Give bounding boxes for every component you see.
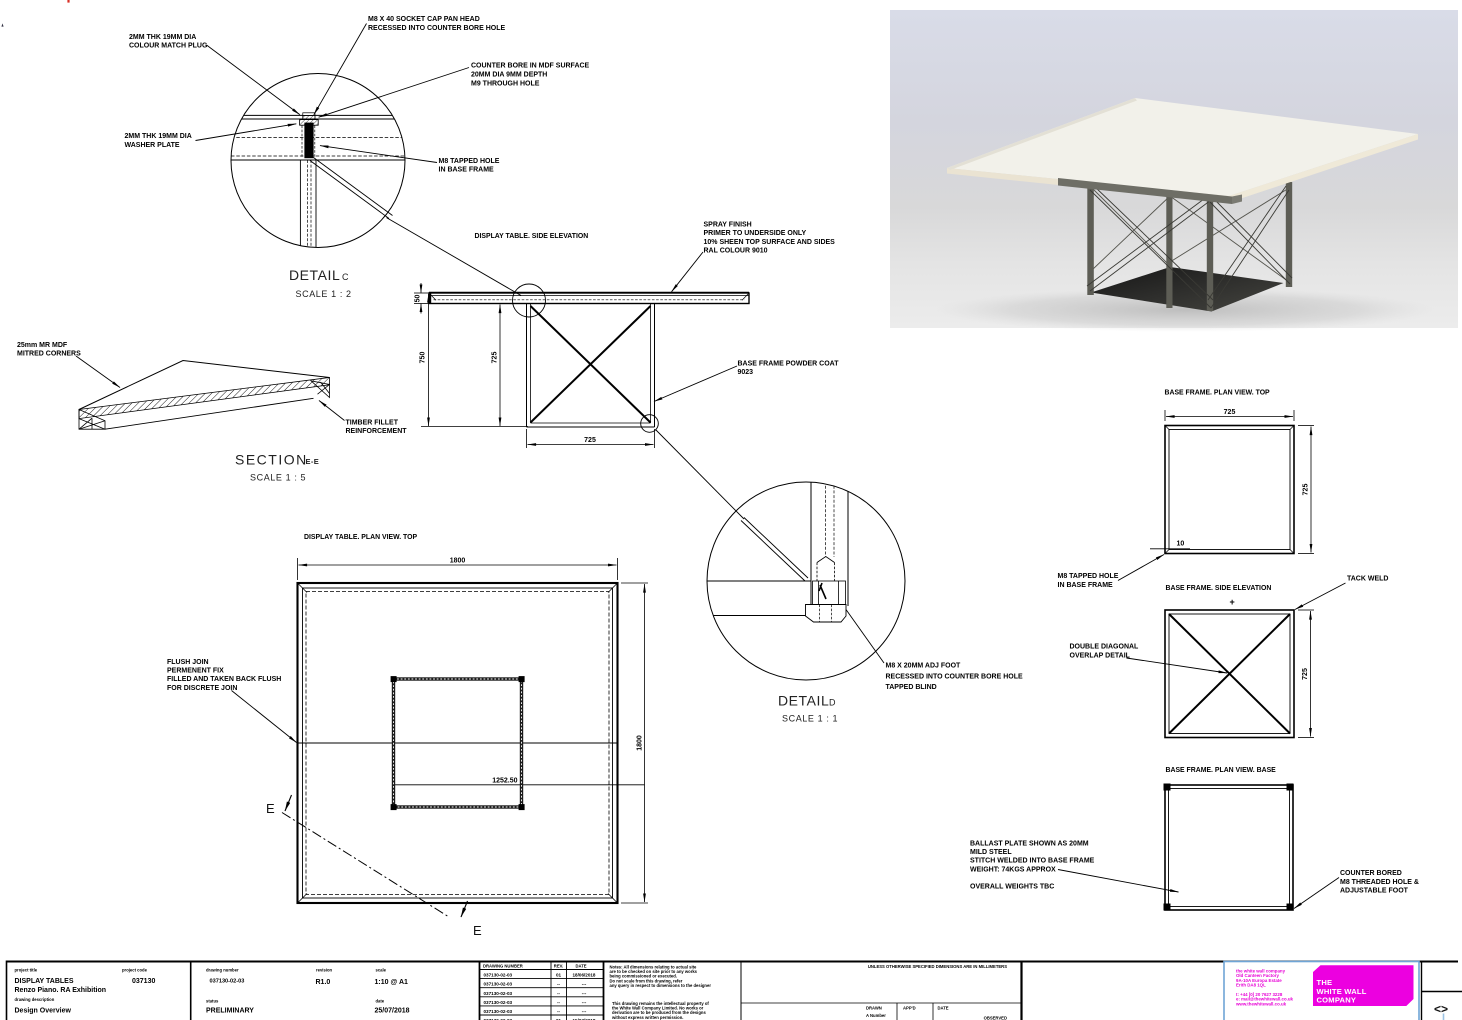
svg-text:--: -- [557, 1009, 561, 1014]
svg-text:1:10 @ A1: 1:10 @ A1 [375, 979, 409, 986]
svg-text:DATE: DATE [575, 964, 586, 969]
svg-text:---: --- [582, 1009, 587, 1014]
svg-text:--: -- [557, 991, 561, 996]
svg-text:SCALE 1 : 5: SCALE 1 : 5 [250, 473, 306, 483]
svg-text:drawing number: drawing number [206, 968, 239, 973]
svg-text:E: E [473, 923, 482, 938]
svg-text:18/06/2018: 18/06/2018 [573, 973, 596, 978]
svg-text:037130: 037130 [132, 978, 155, 985]
svg-text:BASE FRAME. PLAN VIEW. BASE: BASE FRAME. PLAN VIEW. BASE [1166, 767, 1277, 774]
svg-text:---: --- [582, 991, 587, 996]
svg-text:E-E: E-E [306, 457, 320, 466]
svg-text:date: date [376, 999, 385, 1004]
svg-text:TACK WELD: TACK WELD [1347, 576, 1388, 583]
svg-text:1800: 1800 [637, 735, 644, 751]
svg-text:status: status [206, 999, 219, 1004]
svg-text:scale: scale [376, 968, 387, 973]
svg-text:<>: <> [1434, 1002, 1448, 1016]
svg-text:---: --- [582, 982, 587, 987]
svg-text:Design Overview: Design Overview [15, 1008, 72, 1015]
svg-text:DISPLAY TABLE. SIDE ELEVATION: DISPLAY TABLE. SIDE ELEVATION [475, 233, 589, 240]
svg-text:--: -- [557, 982, 561, 987]
svg-text:BASE FRAME. SIDE ELEVATION: BASE FRAME. SIDE ELEVATION [1166, 585, 1272, 592]
svg-text:OVERALL WEIGHTS TBC: OVERALL WEIGHTS TBC [970, 884, 1054, 891]
svg-text:project title: project title [15, 968, 38, 973]
svg-text:037130-02-03: 037130-02-03 [484, 1000, 513, 1005]
svg-text:OBSERVED: OBSERVED [984, 1016, 1007, 1020]
svg-text:1800: 1800 [450, 558, 466, 565]
svg-text:A Number: A Number [866, 1013, 886, 1018]
svg-text:C: C [342, 272, 349, 282]
svg-text:D: D [829, 698, 836, 708]
svg-text:725: 725 [584, 437, 596, 444]
svg-text:DATE: DATE [938, 1006, 949, 1011]
svg-text:725: 725 [1303, 484, 1310, 496]
svg-text:SECTION: SECTION [235, 452, 308, 468]
svg-text:REV.: REV. [554, 964, 563, 969]
svg-text:50: 50 [414, 295, 421, 303]
svg-text:SCALE 1 : 1: SCALE 1 : 1 [782, 714, 838, 724]
svg-text:R1.0: R1.0 [316, 979, 331, 986]
svg-text:037130-02-03: 037130-02-03 [210, 979, 245, 985]
svg-text:01: 01 [556, 973, 562, 978]
svg-text:037130-02-03: 037130-02-03 [484, 991, 513, 996]
svg-text:---: --- [582, 1000, 587, 1005]
svg-text:project code: project code [122, 968, 148, 973]
svg-text:revision: revision [316, 968, 333, 973]
svg-text:--: -- [557, 1000, 561, 1005]
svg-text:DETAIL: DETAIL [289, 267, 340, 283]
svg-text:E: E [266, 801, 275, 816]
svg-text:APP'D: APP'D [903, 1006, 916, 1011]
svg-text:725: 725 [492, 352, 499, 364]
svg-text:037130-02-03: 037130-02-03 [484, 1009, 513, 1014]
svg-text:DRAWN: DRAWN [866, 1006, 882, 1011]
svg-text:10: 10 [1177, 541, 1185, 548]
svg-text:PRELIMINARY: PRELIMINARY [206, 1008, 254, 1015]
svg-text:UNLESS OTHERWISE SPECIFIED DIM: UNLESS OTHERWISE SPECIFIED DIMENSIONS AR… [868, 964, 1007, 969]
svg-text:037130-02-03: 037130-02-03 [484, 973, 513, 978]
svg-text:M8 TAPPED HOLEIN BASE FRAME: M8 TAPPED HOLEIN BASE FRAME [439, 158, 500, 174]
svg-text:037130-02-03: 037130-02-03 [484, 982, 513, 987]
svg-text:BASE FRAME. PLAN VIEW. TOP: BASE FRAME. PLAN VIEW. TOP [1165, 390, 1271, 397]
svg-text:SCALE 1 : 2: SCALE 1 : 2 [296, 289, 352, 299]
svg-text:DISPLAY TABLE. PLAN VIEW. TO: DISPLAY TABLE. PLAN VIEW. TOP [304, 534, 417, 541]
svg-text:+: + [1230, 597, 1235, 607]
svg-text:25/07/2018: 25/07/2018 [375, 1008, 410, 1015]
svg-text:750: 750 [420, 352, 427, 364]
svg-text:1252.50: 1252.50 [492, 778, 517, 785]
svg-text:DETAIL: DETAIL [778, 693, 829, 709]
svg-text:2MM THK 19MM DIACOLOUR MATCH P: 2MM THK 19MM DIACOLOUR MATCH PLUG [129, 34, 208, 50]
svg-text:725: 725 [1224, 409, 1236, 416]
svg-text:DRAWING NUMBER: DRAWING NUMBER [483, 964, 523, 969]
svg-text:drawing description: drawing description [15, 997, 55, 1002]
svg-text:725: 725 [1302, 668, 1309, 680]
